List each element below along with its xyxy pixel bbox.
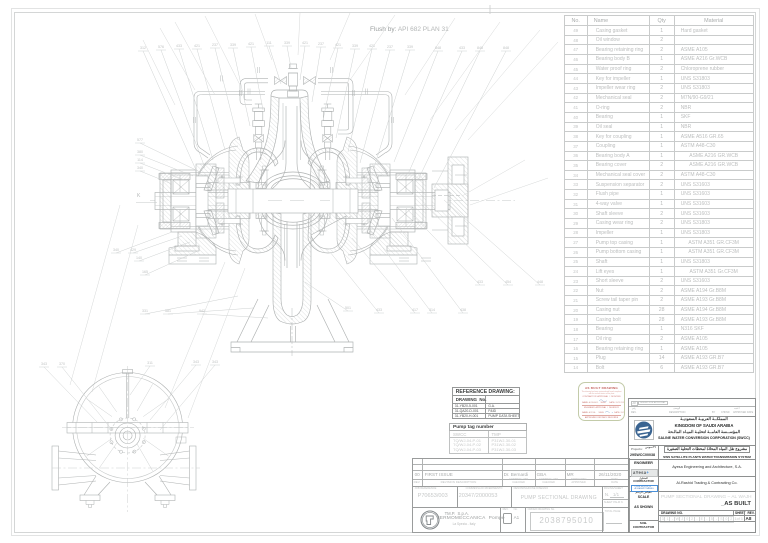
svg-text:421: 421 [248,42,254,46]
svg-text:421: 421 [369,44,375,48]
svg-text:111: 111 [266,41,271,45]
svg-text:421: 421 [194,44,200,48]
svg-text:421: 421 [302,41,308,45]
svg-text:848: 848 [503,46,509,50]
svg-text:312: 312 [140,46,146,50]
svg-text:K: K [137,193,141,199]
svg-text:237: 237 [387,45,393,49]
svg-text:577: 577 [137,138,143,142]
svg-text:339: 339 [284,41,290,45]
svg-text:581: 581 [165,309,171,313]
svg-text:339: 339 [352,44,358,48]
svg-text:340: 340 [137,166,143,170]
svg-text:433: 433 [376,308,382,312]
svg-text:339: 339 [230,43,236,47]
svg-text:448: 448 [537,280,543,284]
svg-text:343: 343 [212,360,218,364]
svg-text:848: 848 [435,46,441,50]
svg-text:848: 848 [477,46,483,50]
svg-text:339: 339 [407,45,413,49]
svg-text:380: 380 [137,150,143,154]
svg-text:433: 433 [477,280,483,284]
svg-text:165: 165 [142,270,148,274]
svg-text:237: 237 [212,43,218,47]
svg-text:942: 942 [199,309,205,313]
svg-text:331: 331 [142,309,148,313]
svg-text:311: 311 [147,361,153,365]
svg-text:438: 438 [460,308,466,312]
svg-text:314: 314 [429,308,435,312]
svg-text:114: 114 [137,158,143,162]
svg-text:343: 343 [41,362,47,366]
svg-text:429: 429 [130,248,136,252]
svg-text:140: 140 [136,256,142,260]
svg-text:454: 454 [505,280,511,284]
svg-text:417: 417 [412,308,418,312]
svg-text:433: 433 [176,44,182,48]
svg-text:Flush by: API 682 PLAN 31: Flush by: API 682 PLAN 31 [370,26,449,33]
svg-text:421: 421 [335,43,341,47]
svg-text:370: 370 [59,362,65,366]
svg-text:576: 576 [158,45,164,49]
svg-text:343: 343 [193,360,199,364]
svg-text:433: 433 [459,46,465,50]
svg-text:340: 340 [113,248,119,252]
svg-text:501: 501 [345,306,351,310]
svg-text:237: 237 [318,42,324,46]
